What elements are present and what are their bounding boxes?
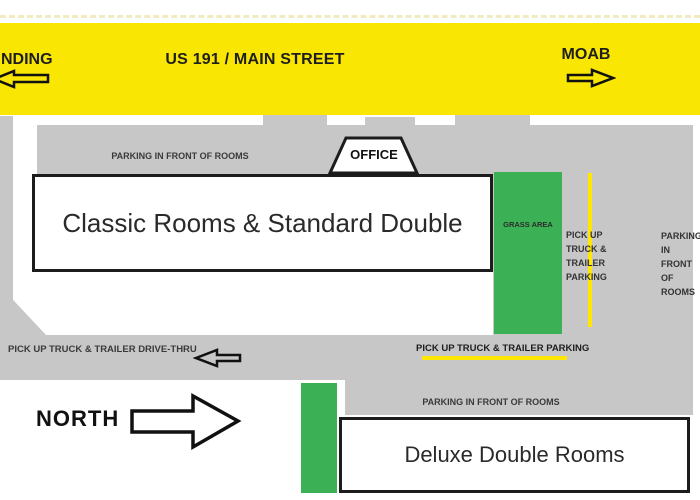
parking-front-east-label: PARKING IN FRONT OF ROOMS — [661, 229, 700, 299]
road-band: US 191 / MAIN STREET NDING MOAB — [0, 23, 700, 115]
parking-front-east-line: PARKING — [661, 229, 700, 243]
north-arrow-icon — [129, 392, 243, 452]
drive-thru-lane — [0, 335, 693, 380]
east-arrow-icon — [566, 67, 616, 89]
road-edge-dashed-line — [0, 15, 700, 18]
parking-front-east-line: IN FRONT — [661, 243, 700, 271]
parking-front-east-line: OF — [661, 271, 700, 285]
driveway-entrance-office — [365, 117, 415, 127]
west-arrow-icon — [0, 69, 52, 89]
parking-front-east-line: ROOMS — [661, 285, 700, 299]
pickup-parking-east-line: TRUCK & — [566, 242, 607, 256]
parking-front-bottom-label: PARKING IN FRONT OF ROOMS — [415, 397, 567, 407]
grass-area — [494, 172, 562, 334]
deluxe-rooms-label: Deluxe Double Rooms — [404, 442, 624, 468]
left-driveway-strip — [0, 116, 13, 306]
driveway-entrance-west — [263, 114, 327, 127]
pickup-parking-east-line: PICK UP — [566, 228, 607, 242]
grass-area-label: GRASS AREA — [494, 220, 562, 229]
north-label: NORTH — [36, 406, 119, 432]
classic-rooms-label: Classic Rooms & Standard Double — [62, 208, 462, 239]
pickup-parking-mid-label: PICK UP TRUCK & TRAILER PARKING — [416, 343, 589, 354]
site-map: US 191 / MAIN STREET NDING MOAB GRASS AR… — [0, 0, 700, 500]
pickup-parking-east-line: TRAILER — [566, 256, 607, 270]
left-driveway-corner — [0, 300, 47, 336]
office-label: OFFICE — [333, 147, 415, 162]
grass-strip — [301, 383, 337, 493]
pickup-parking-east-line: PARKING — [566, 270, 607, 284]
driveway-entrance-east — [455, 114, 530, 127]
deluxe-rooms-building: Deluxe Double Rooms — [339, 417, 690, 493]
yellow-parking-line-horizontal — [422, 356, 567, 360]
road-west-label: NDING — [1, 51, 53, 69]
road-east-label: MOAB — [540, 46, 632, 64]
pickup-parking-east-label: PICK UP TRUCK & TRAILER PARKING — [566, 228, 607, 284]
drive-thru-arrow-icon — [193, 347, 243, 369]
classic-rooms-building: Classic Rooms & Standard Double — [32, 174, 493, 272]
drive-thru-label: PICK UP TRUCK & TRAILER DRIVE-THRU — [8, 344, 197, 355]
road-name-label: US 191 / MAIN STREET — [150, 51, 360, 69]
parking-front-top-label: PARKING IN FRONT OF ROOMS — [100, 151, 260, 161]
